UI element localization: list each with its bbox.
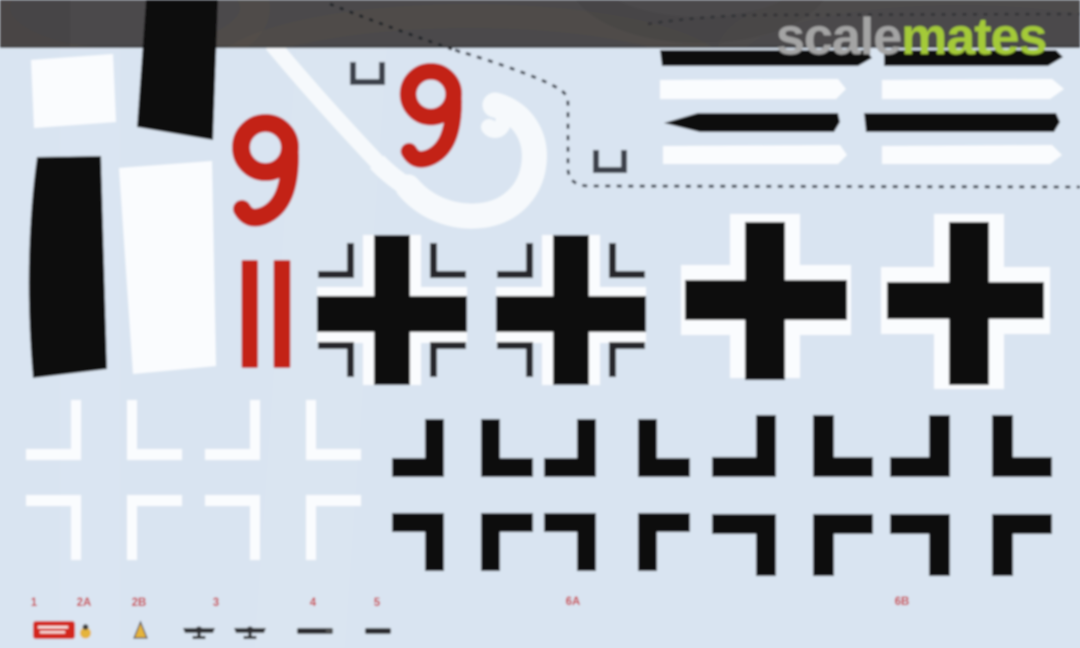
svg-text:scalemates: scalemates <box>776 8 1046 66</box>
svg-text:5: 5 <box>374 597 381 609</box>
svg-text:2B: 2B <box>132 597 147 609</box>
svg-text:6B: 6B <box>895 596 910 608</box>
svg-text:1: 1 <box>31 597 38 609</box>
svg-text:6A: 6A <box>566 596 581 608</box>
svg-text:3: 3 <box>213 597 219 609</box>
svg-text:2A: 2A <box>77 597 92 609</box>
svg-text:4: 4 <box>310 597 317 609</box>
